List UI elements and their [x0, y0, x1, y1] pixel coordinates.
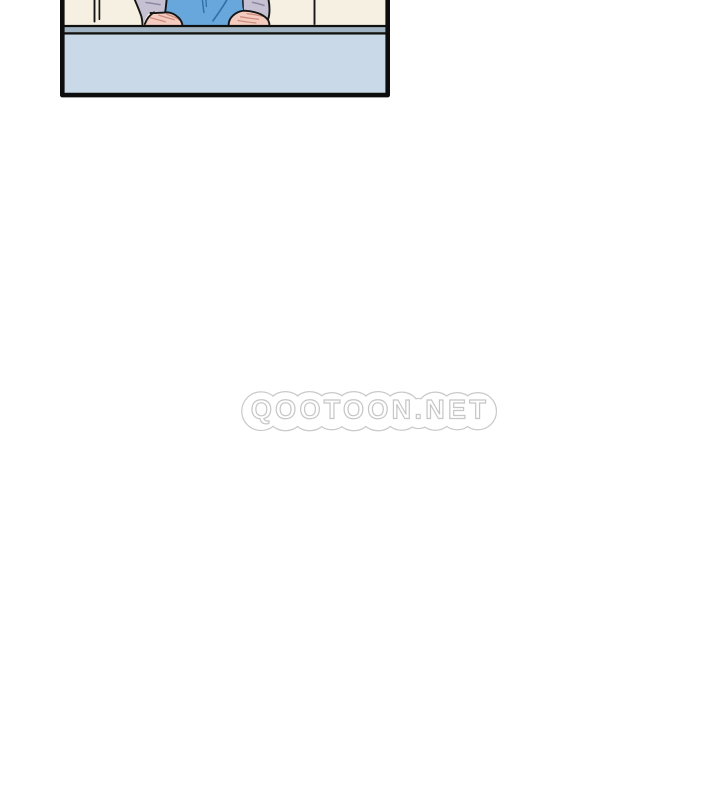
svg-text:QOOTOON.NET: QOOTOON.NET	[251, 395, 489, 425]
